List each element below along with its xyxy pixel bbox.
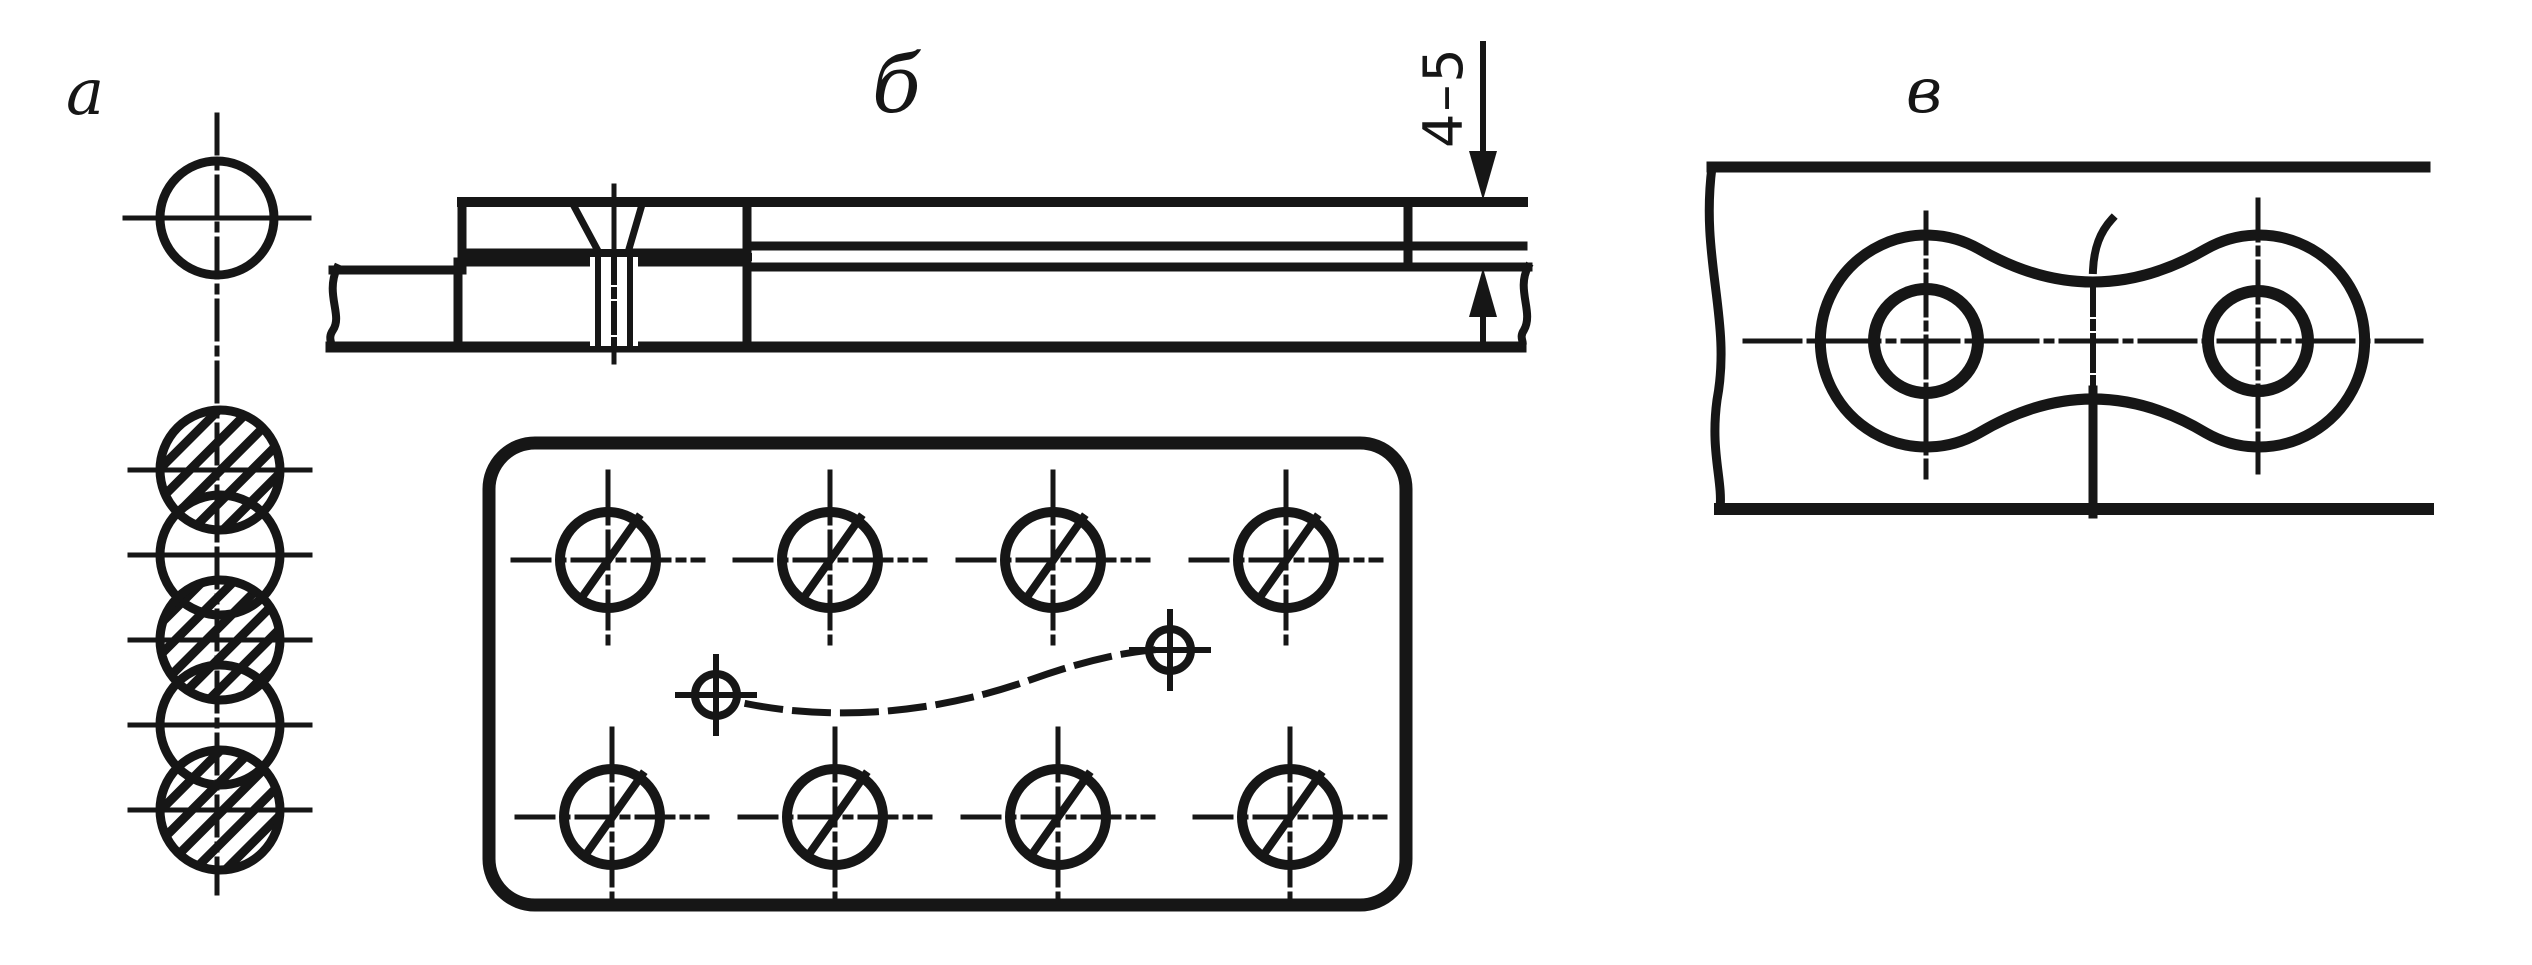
mid-line-hook: [2093, 219, 2112, 270]
dimension-arrow-up: [1469, 268, 1497, 317]
spot-weld-symbol: [1195, 729, 1385, 905]
spot-weld-symbol: [735, 472, 925, 648]
figure-b-section-view: б 4–5: [330, 38, 1528, 362]
spot-weld-symbol: [513, 472, 703, 648]
spot-weld-symbols: [513, 472, 1385, 905]
figure-a-seam-weld-row: а: [66, 56, 310, 893]
tack-weld-symbols: [678, 612, 1208, 733]
dimension-value-text: 4–5: [1412, 46, 1475, 148]
spot-weld-symbol: [1191, 472, 1381, 648]
spot-weld-symbol: [517, 729, 707, 905]
figure-v-plug-welds: в: [1709, 54, 2428, 514]
label-figure-b: б: [872, 38, 922, 131]
seam-weld-circle-hatched: [160, 410, 280, 530]
tack-weld-symbol: [1132, 612, 1208, 688]
lower-plate-left-break-line: [330, 268, 337, 347]
label-figure-v: в: [1906, 54, 1942, 127]
scanned-technical-drawing: а б 4–5: [0, 0, 2532, 965]
dimension-4-5: 4–5: [1412, 44, 1497, 341]
seam-weld-circle-hatched: [160, 580, 280, 700]
plate-left-break-edge: [1709, 167, 1721, 509]
spot-weld-symbol: [963, 729, 1153, 905]
figure-b-plan-view: [489, 443, 1406, 905]
spot-weld-symbol: [740, 729, 930, 905]
tack-weld-symbol: [678, 657, 754, 733]
seam-weld-circle-hatched: [160, 750, 280, 870]
label-figure-a: а: [66, 56, 104, 130]
lower-plate-right-break-line: [1521, 267, 1528, 347]
drawing-canvas: а б 4–5: [0, 0, 2532, 965]
tack-spots-dashed-leader: [748, 650, 1152, 713]
dimension-arrow-down: [1469, 151, 1497, 200]
spot-weld-symbol: [958, 472, 1148, 648]
